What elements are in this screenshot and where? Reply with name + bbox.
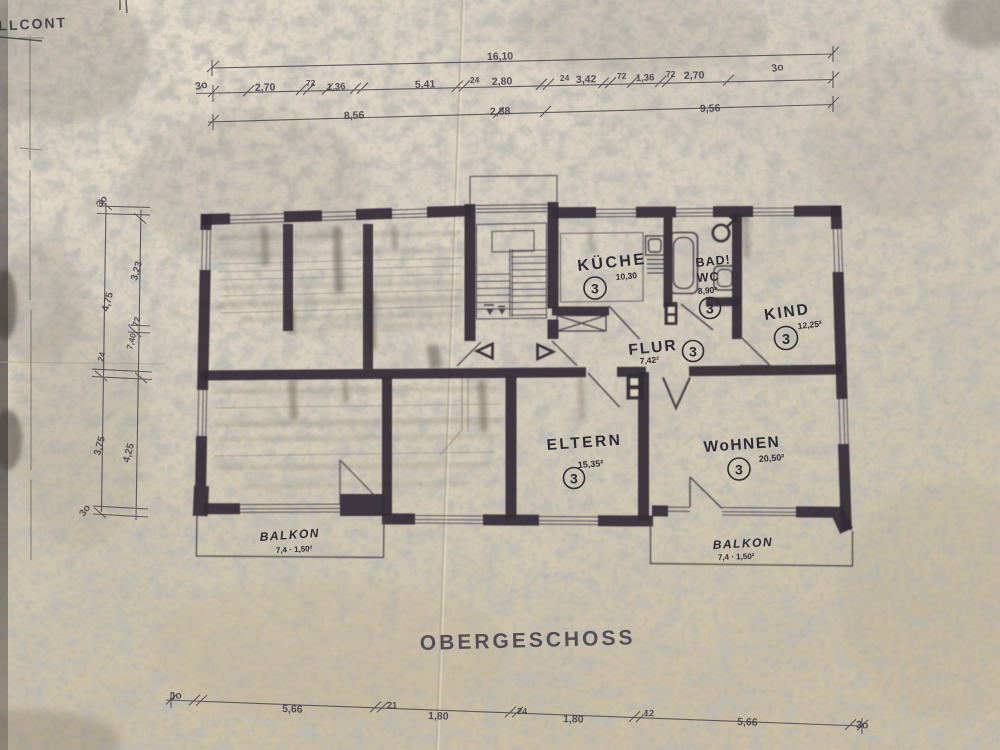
- svg-text:3: 3: [706, 301, 714, 317]
- svg-text:8,90²: 8,90²: [697, 285, 717, 296]
- svg-text:3: 3: [570, 471, 578, 487]
- svg-text:24: 24: [560, 73, 570, 83]
- svg-text:1,80: 1,80: [563, 713, 584, 726]
- svg-text:3: 3: [735, 462, 743, 478]
- svg-text:7,42²: 7,42²: [639, 354, 659, 366]
- svg-text:3o: 3o: [194, 79, 208, 93]
- svg-text:15,35²: 15,35²: [577, 458, 603, 470]
- svg-text:20,50²: 20,50²: [758, 452, 784, 464]
- svg-text:2,88: 2,88: [490, 105, 511, 118]
- svg-text:24: 24: [470, 75, 480, 85]
- svg-text:5,41: 5,41: [415, 78, 436, 91]
- svg-text:5,66: 5,66: [737, 716, 758, 729]
- svg-text:3: 3: [689, 344, 697, 360]
- svg-text:3: 3: [591, 281, 599, 297]
- svg-text:WC: WC: [696, 269, 720, 285]
- svg-text:1,36: 1,36: [636, 72, 655, 84]
- svg-text:1,36: 1,36: [327, 81, 346, 93]
- svg-text:3: 3: [782, 332, 790, 348]
- svg-text:24: 24: [517, 706, 527, 716]
- svg-text:1,80: 1,80: [428, 710, 449, 723]
- svg-text:Jo: Jo: [169, 689, 183, 703]
- svg-text:5,66: 5,66: [282, 703, 303, 716]
- svg-text:8,56: 8,56: [344, 109, 365, 122]
- svg-text:72: 72: [617, 71, 627, 81]
- svg-text:9,56: 9,56: [700, 102, 721, 115]
- svg-text:16,10: 16,10: [487, 50, 514, 63]
- svg-text:3,42: 3,42: [576, 73, 597, 86]
- svg-text:3o: 3o: [856, 719, 869, 731]
- svg-text:72: 72: [666, 69, 676, 79]
- svg-text:21: 21: [387, 700, 397, 710]
- svg-text:2,70: 2,70: [684, 69, 705, 82]
- svg-text:2,80: 2,80: [492, 75, 513, 88]
- svg-text:10,30: 10,30: [615, 270, 637, 282]
- svg-text:3o: 3o: [770, 61, 784, 75]
- svg-text:12: 12: [644, 708, 654, 718]
- svg-text:2,70: 2,70: [255, 81, 276, 94]
- svg-text:7,4 · 1,50²: 7,4 · 1,50²: [718, 552, 755, 562]
- svg-text:7,4 · 1,50²: 7,4 · 1,50²: [276, 544, 313, 555]
- svg-text:72: 72: [306, 78, 316, 88]
